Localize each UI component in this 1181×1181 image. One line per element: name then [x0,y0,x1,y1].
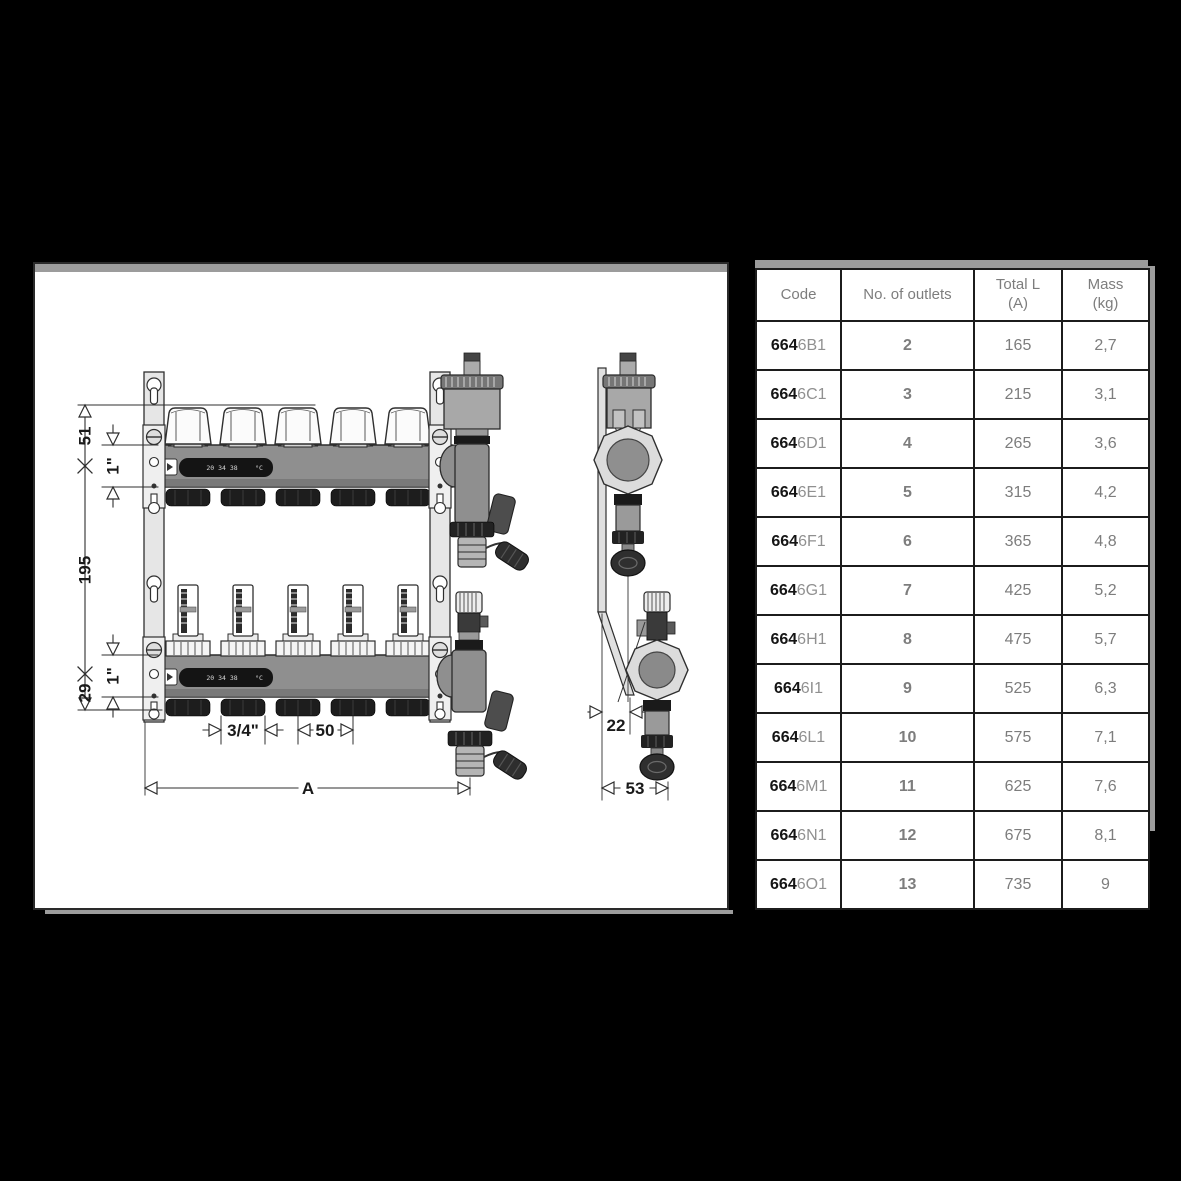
code-cell: 6646C1 [756,370,841,419]
table-row: 6646H1 8 475 5,7 [756,615,1149,664]
dim-22-label: 22 [607,716,626,735]
table-row: 6646I1 9 525 6,3 [756,664,1149,713]
table-row: 6646C1 3 215 3,1 [756,370,1149,419]
col-header-total-l: Total L(A) [974,269,1062,321]
table-row: 6646F1 6 365 4,8 [756,517,1149,566]
catalog-page: { "page": { "background": "#000000", "pa… [0,0,1181,1181]
mass-cell: 8,1 [1062,811,1149,860]
mass-cell: 6,3 [1062,664,1149,713]
total-l-cell: 215 [974,370,1062,419]
dim-29-label: 29 [76,684,95,703]
outlets-cell: 13 [841,860,974,909]
outlets-cell: 10 [841,713,974,762]
scan-shadow-bottom [45,910,733,914]
dim-51-label: 51 [76,427,95,446]
outlets-cell: 5 [841,468,974,517]
mass-cell: 4,8 [1062,517,1149,566]
code-cell: 6646L1 [756,713,841,762]
mass-cell: 9 [1062,860,1149,909]
dim-50-label: 50 [316,721,335,740]
outlets-cell: 4 [841,419,974,468]
strip-unit-label: °C [255,464,263,472]
outlets-cell: 6 [841,517,974,566]
strip-scale-label: 20 34 38 [206,674,237,682]
wall-bracket-left [143,372,165,722]
total-l-cell: 475 [974,615,1062,664]
mass-cell: 7,1 [1062,713,1149,762]
spec-table: Code No. of outlets Total L(A) Mass(kg) … [755,268,1150,910]
code-cell: 6646M1 [756,762,841,811]
table-row: 6646M1 11 625 7,6 [756,762,1149,811]
outlets-cell: 9 [841,664,974,713]
mass-cell: 2,7 [1062,321,1149,370]
table-row: 6646L1 10 575 7,1 [756,713,1149,762]
total-l-cell: 575 [974,713,1062,762]
table-row: 6646N1 12 675 8,1 [756,811,1149,860]
total-l-cell: 625 [974,762,1062,811]
outlets-cell: 2 [841,321,974,370]
total-l-cell: 525 [974,664,1062,713]
outlets-cell: 12 [841,811,974,860]
code-cell: 6646F1 [756,517,841,566]
total-l-cell: 365 [974,517,1062,566]
col-header-mass: Mass(kg) [1062,269,1149,321]
strip-scale-label: 20 34 38 [206,464,237,472]
mass-cell: 5,2 [1062,566,1149,615]
dim-195-label: 195 [76,556,95,584]
code-cell: 6646G1 [756,566,841,615]
dim-1in-bottom-label: 1" [104,667,123,685]
mass-cell: 7,6 [1062,762,1149,811]
strip-unit-label: °C [255,674,263,682]
outlets-cell: 3 [841,370,974,419]
dim-53-label: 53 [626,779,645,798]
table-row: 6646B1 2 165 2,7 [756,321,1149,370]
table-shadow-top [755,260,1148,268]
code-cell: 6646D1 [756,419,841,468]
outlets-cell: 7 [841,566,974,615]
total-l-cell: 265 [974,419,1062,468]
total-l-cell: 735 [974,860,1062,909]
table-row: 6646E1 5 315 4,2 [756,468,1149,517]
code-cell: 6646N1 [756,811,841,860]
mass-cell: 3,1 [1062,370,1149,419]
table-row: 6646O1 13 735 9 [756,860,1149,909]
technical-drawing-panel: 20 34 38 °C 20 34 38 °C [33,262,729,910]
dim-A-label: A [302,779,314,798]
col-header-code: Code [756,269,841,321]
table-row: 6646G1 7 425 5,2 [756,566,1149,615]
total-l-cell: 315 [974,468,1062,517]
mass-cell: 3,6 [1062,419,1149,468]
col-header-outlets: No. of outlets [841,269,974,321]
dim-1in-top-label: 1" [104,457,123,475]
code-cell: 6646E1 [756,468,841,517]
total-l-cell: 675 [974,811,1062,860]
scan-shadow-top [35,264,727,272]
code-cell: 6646B1 [756,321,841,370]
code-cell: 6646H1 [756,615,841,664]
mass-cell: 5,7 [1062,615,1149,664]
total-l-cell: 425 [974,566,1062,615]
manifold-drawing: 20 34 38 °C 20 34 38 °C [35,264,727,908]
outlets-cell: 8 [841,615,974,664]
table-row: 6646D1 4 265 3,6 [756,419,1149,468]
table-header-row: Code No. of outlets Total L(A) Mass(kg) [756,269,1149,321]
dim-34in-label: 3/4" [227,721,259,740]
outlets-cell: 11 [841,762,974,811]
code-cell: 6646I1 [756,664,841,713]
mass-cell: 4,2 [1062,468,1149,517]
total-l-cell: 165 [974,321,1062,370]
code-cell: 6646O1 [756,860,841,909]
